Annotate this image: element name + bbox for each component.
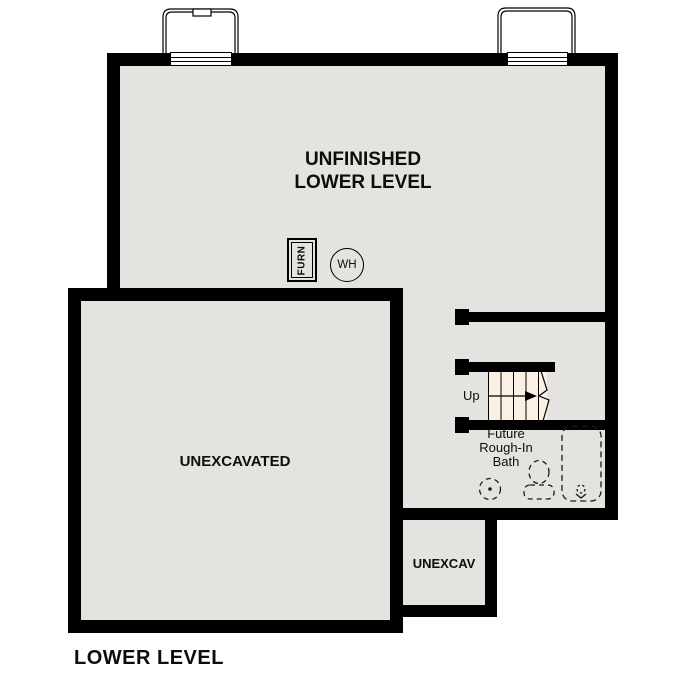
furnace-box: FURN — [287, 238, 317, 282]
furnace-label: FURN — [297, 245, 308, 275]
wall-left — [107, 53, 120, 301]
wall-unexcavated-left — [68, 288, 81, 633]
wall-bath-bottom — [390, 508, 618, 520]
stairs-up-label: Up — [463, 388, 480, 403]
wall-unexcavated-bottom — [68, 620, 403, 633]
wall-unexcavated-right — [390, 288, 403, 620]
water-heater-label: WH — [337, 259, 356, 271]
floor-plan: FURN WH UNFINISHED LOWER LEVEL UNEXCAVAT… — [0, 0, 687, 687]
wall-stair-top-cap — [455, 359, 469, 375]
floor-stair-hall — [403, 312, 607, 510]
water-heater-circle: WH — [330, 248, 364, 282]
wall-stair-top — [458, 362, 555, 372]
room-label-unexcavated: UNEXCAVATED — [110, 453, 360, 470]
wall-hall-upper — [458, 312, 618, 322]
window-well-left-icon — [163, 9, 238, 54]
wall-unexcav-small-right — [485, 520, 497, 617]
wall-unexcav-small-bottom — [390, 605, 497, 617]
wall-right — [605, 53, 618, 520]
wall-unexcavated-top — [68, 288, 403, 301]
room-label-unexcav: UNEXCAV — [403, 556, 485, 571]
window-right — [507, 52, 568, 66]
plan-title: LOWER LEVEL — [74, 647, 224, 670]
room-label-unfinished-lower-level: UNFINISHED LOWER LEVEL — [238, 148, 488, 194]
wall-hall-upper-cap — [455, 309, 469, 325]
window-well-right-icon — [498, 8, 575, 54]
window-left — [170, 52, 232, 66]
room-label-future-bath: Future Rough-In Bath — [455, 427, 557, 469]
furnace-inner-box: FURN — [291, 242, 313, 278]
